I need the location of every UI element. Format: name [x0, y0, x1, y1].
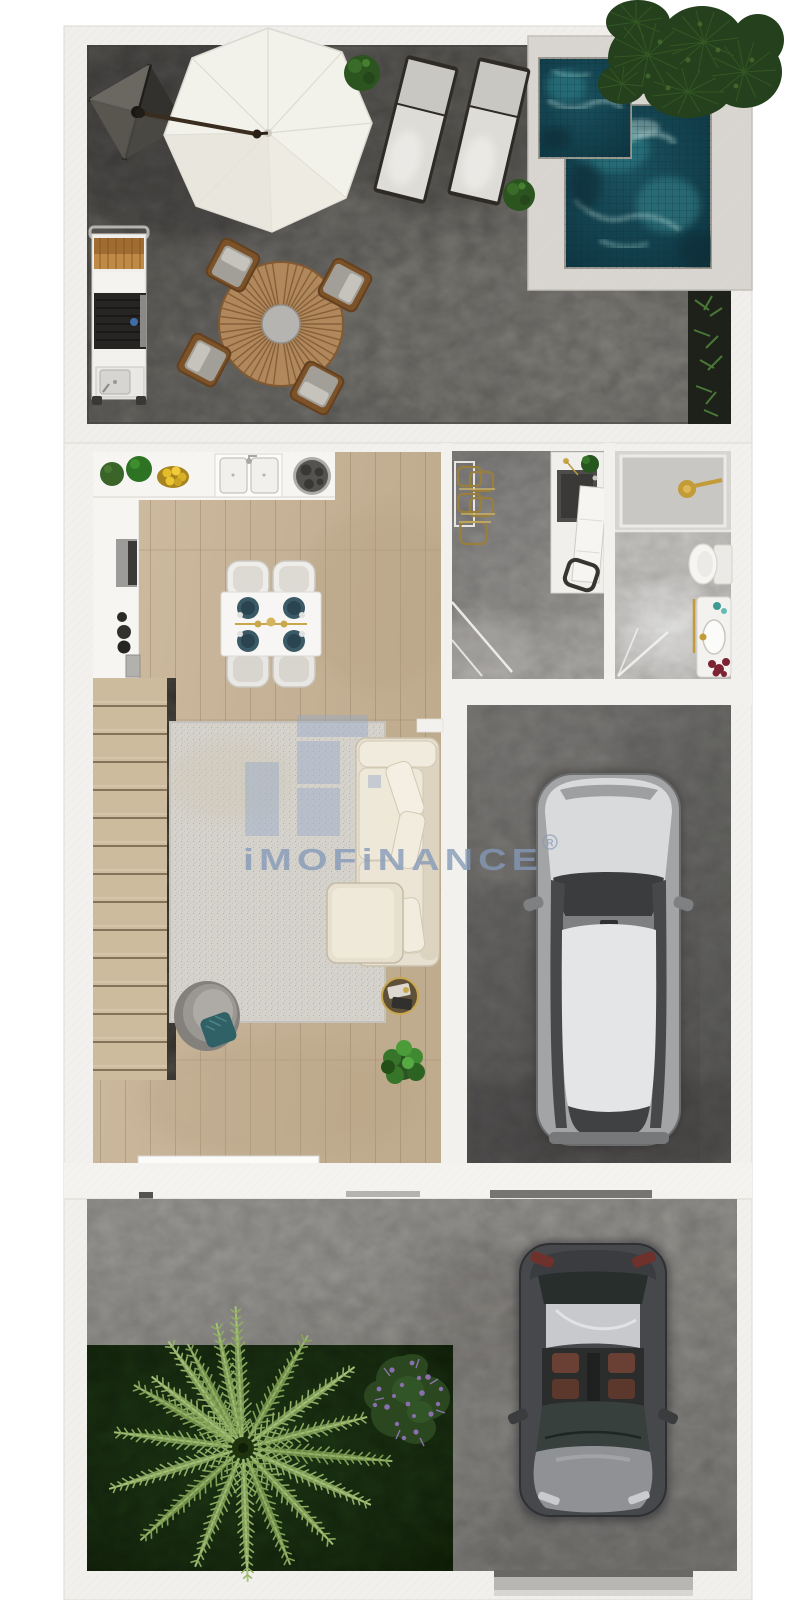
- svg-text:iMOFiNANCE: iMOFiNANCE: [243, 842, 543, 877]
- svg-text:R: R: [546, 838, 554, 849]
